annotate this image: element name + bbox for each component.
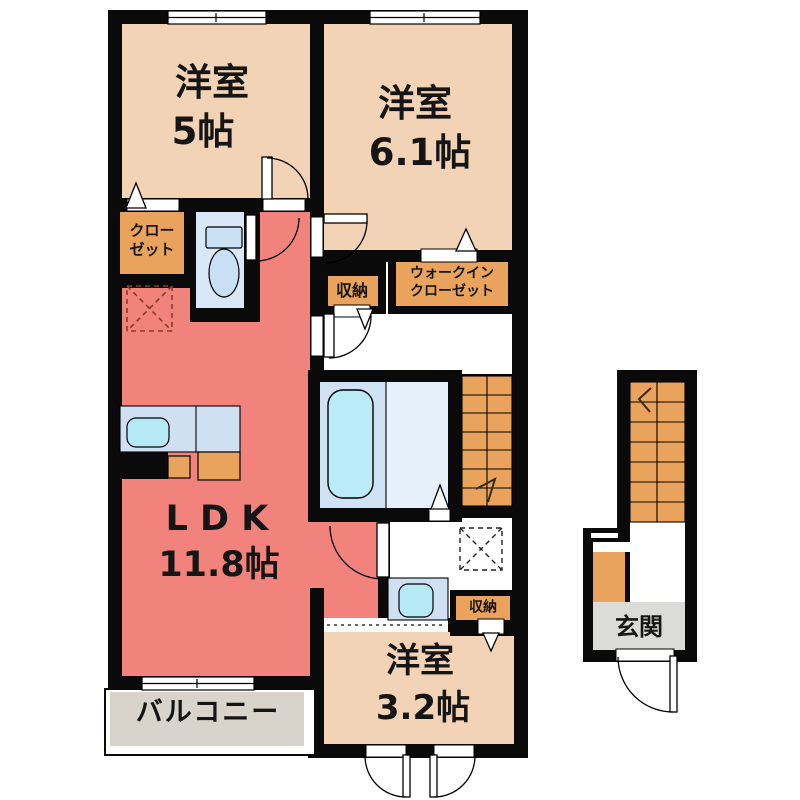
entrance-stairs-icon xyxy=(630,382,685,522)
toilet-icon xyxy=(206,227,242,297)
storage-hall-label: 収納 xyxy=(336,281,368,301)
entrance-label: 玄関 xyxy=(615,612,663,642)
floor-plan: 洋室 5帖 洋室 6.1帖 L D K 11.8帖 洋室 3.2帖 バルコニー … xyxy=(0,0,800,800)
balcony-label: バルコニー xyxy=(136,696,280,730)
bedroom1-size: 5帖 xyxy=(172,109,235,155)
stairs-arrow-icon xyxy=(476,479,495,502)
stairs-icon xyxy=(462,376,512,506)
bedroom3-label: 洋室 xyxy=(386,640,454,683)
bedroom2-size: 6.1帖 xyxy=(369,130,472,176)
entrance-stairs-arrow-icon xyxy=(639,388,651,412)
kitchen-counter-icon xyxy=(120,406,240,480)
bedroom3-size: 3.2帖 xyxy=(376,687,470,730)
bedroom1-label: 洋室 xyxy=(175,60,249,106)
bedroom2-label: 洋室 xyxy=(378,81,452,127)
storage-washroom-label: 収納 xyxy=(469,599,497,617)
bathtub-icon xyxy=(328,382,386,508)
ldk-size: 11.8帖 xyxy=(158,544,279,588)
walk-in-closet-label: ウォークインクローゼット xyxy=(410,266,494,301)
ldk-label: L D K xyxy=(166,498,269,542)
washbasin-icon xyxy=(388,578,448,620)
closet-label: クローゼット xyxy=(129,221,174,259)
